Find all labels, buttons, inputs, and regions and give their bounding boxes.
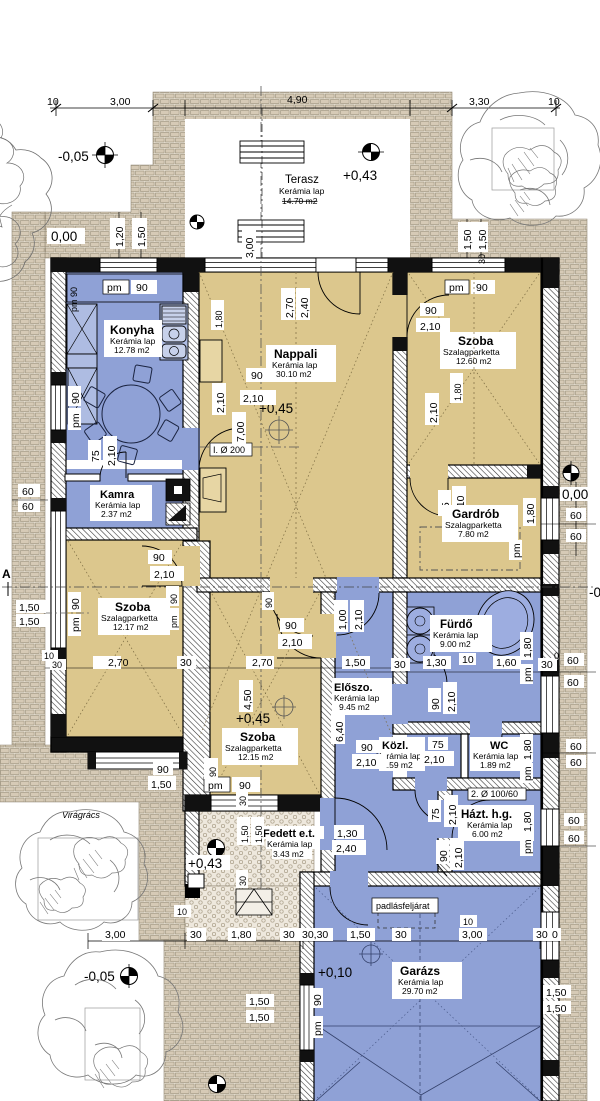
svg-text:pm: pm bbox=[107, 282, 122, 294]
svg-text:1.59 m2: 1.59 m2 bbox=[382, 760, 413, 770]
svg-text:3,00: 3,00 bbox=[105, 929, 126, 941]
svg-text:2,40: 2,40 bbox=[336, 843, 357, 855]
svg-text:12.17 m2: 12.17 m2 bbox=[113, 622, 149, 632]
svg-text:90: 90 bbox=[157, 764, 169, 776]
svg-text:75: 75 bbox=[90, 450, 102, 462]
svg-text:10: 10 bbox=[462, 654, 474, 666]
svg-text:1,50: 1,50 bbox=[350, 929, 371, 941]
svg-text:60: 60 bbox=[568, 815, 580, 827]
svg-text:1,60: 1,60 bbox=[496, 657, 517, 669]
svg-text:30: 30 bbox=[536, 929, 548, 941]
svg-text:10: 10 bbox=[463, 917, 473, 927]
svg-text:60: 60 bbox=[568, 833, 580, 845]
svg-text:30: 30 bbox=[477, 254, 487, 264]
svg-text:60: 60 bbox=[570, 741, 582, 753]
svg-text:Szoba: Szoba bbox=[458, 334, 494, 348]
svg-text:0: 0 bbox=[552, 929, 558, 941]
svg-text:90: 90 bbox=[208, 767, 218, 777]
svg-text:1,50: 1,50 bbox=[546, 987, 567, 999]
svg-text:1,80: 1,80 bbox=[214, 310, 224, 328]
svg-text:2,10: 2,10 bbox=[446, 691, 458, 712]
svg-text:4,90: 4,90 bbox=[287, 94, 308, 106]
svg-text:pm: pm bbox=[522, 839, 534, 854]
svg-text:30: 30 bbox=[394, 659, 406, 671]
svg-text:A: A bbox=[2, 567, 11, 581]
svg-text:29.70 m2: 29.70 m2 bbox=[402, 986, 438, 996]
svg-text:1,50: 1,50 bbox=[345, 657, 366, 669]
svg-text:+0,43: +0,43 bbox=[188, 856, 222, 871]
svg-text:I. Ø 200: I. Ø 200 bbox=[213, 445, 245, 455]
svg-text:2,10: 2,10 bbox=[154, 569, 175, 581]
svg-text:60: 60 bbox=[570, 531, 582, 543]
svg-text:3,30: 3,30 bbox=[469, 96, 490, 108]
svg-text:90: 90 bbox=[361, 742, 373, 754]
svg-text:1,80: 1,80 bbox=[522, 811, 534, 832]
svg-text:3,00: 3,00 bbox=[462, 929, 483, 941]
svg-text:1,50: 1,50 bbox=[19, 616, 40, 628]
svg-text:2,10: 2,10 bbox=[215, 392, 227, 413]
svg-text:1,80: 1,80 bbox=[522, 739, 534, 760]
svg-text:60: 60 bbox=[567, 677, 579, 689]
svg-text:10: 10 bbox=[177, 907, 187, 917]
svg-text:30: 30 bbox=[180, 657, 192, 669]
svg-text:10: 10 bbox=[47, 96, 59, 108]
svg-text:60: 60 bbox=[22, 486, 34, 498]
svg-text:pm: pm bbox=[312, 1021, 324, 1036]
svg-text:1,50: 1,50 bbox=[19, 602, 40, 614]
svg-text:pm: pm bbox=[522, 766, 534, 781]
svg-text:1,00: 1,00 bbox=[337, 609, 349, 630]
svg-text:30,30: 30,30 bbox=[302, 929, 328, 941]
svg-text:2,10: 2,10 bbox=[243, 393, 264, 405]
svg-text:90: 90 bbox=[438, 850, 450, 862]
svg-text:1,50: 1,50 bbox=[462, 229, 474, 250]
svg-text:Nappali: Nappali bbox=[274, 347, 317, 361]
svg-text:30: 30 bbox=[238, 876, 248, 886]
svg-text:1,50: 1,50 bbox=[254, 825, 264, 843]
svg-text:1,30: 1,30 bbox=[426, 657, 447, 669]
svg-text:2,10: 2,10 bbox=[420, 321, 441, 333]
svg-text:90: 90 bbox=[70, 392, 82, 404]
svg-text:30.10 m2: 30.10 m2 bbox=[276, 369, 312, 379]
svg-text:6.00 m2: 6.00 m2 bbox=[472, 829, 503, 839]
svg-text:30: 30 bbox=[238, 796, 248, 806]
svg-text:1,80: 1,80 bbox=[453, 383, 463, 401]
svg-text:2,10: 2,10 bbox=[356, 757, 377, 769]
svg-text:90: 90 bbox=[169, 594, 179, 604]
svg-text:2,10: 2,10 bbox=[353, 609, 365, 630]
svg-text:14.70 m2: 14.70 m2 bbox=[282, 196, 318, 206]
svg-text:75: 75 bbox=[430, 808, 442, 820]
svg-text:2.37 m2: 2.37 m2 bbox=[101, 509, 132, 519]
svg-text:Terasz: Terasz bbox=[285, 174, 319, 186]
svg-text:3,00: 3,00 bbox=[244, 237, 256, 258]
svg-text:12.15 m2: 12.15 m2 bbox=[238, 752, 274, 762]
svg-text:60: 60 bbox=[570, 757, 582, 769]
svg-text:Kerámia lap: Kerámia lap bbox=[267, 839, 313, 849]
svg-text:1,30: 1,30 bbox=[337, 828, 358, 840]
svg-text:2,10: 2,10 bbox=[282, 637, 303, 649]
svg-text:pm 90: pm 90 bbox=[69, 287, 79, 312]
svg-text:padlásfeljárat: padlásfeljárat bbox=[376, 901, 430, 911]
svg-text:-0,05: -0,05 bbox=[58, 149, 89, 164]
svg-text:1,50: 1,50 bbox=[249, 1012, 270, 1024]
svg-text:1,50: 1,50 bbox=[240, 825, 250, 843]
svg-text:90: 90 bbox=[312, 994, 324, 1006]
svg-text:1,20: 1,20 bbox=[114, 226, 126, 247]
svg-text:pm: pm bbox=[70, 413, 82, 428]
svg-text:1,50: 1,50 bbox=[151, 779, 172, 791]
svg-text:+0,45: +0,45 bbox=[236, 711, 270, 726]
svg-text:9.00 m2: 9.00 m2 bbox=[440, 639, 471, 649]
svg-text:12.78 m2: 12.78 m2 bbox=[114, 345, 150, 355]
svg-text:1,50: 1,50 bbox=[546, 1003, 567, 1015]
svg-text:pm: pm bbox=[449, 282, 464, 294]
svg-text:-0,05: -0,05 bbox=[84, 969, 115, 984]
svg-text:2,10: 2,10 bbox=[428, 402, 440, 423]
svg-text:7,00: 7,00 bbox=[235, 421, 247, 442]
svg-text:2,10: 2,10 bbox=[447, 804, 459, 825]
svg-text:2,70: 2,70 bbox=[284, 297, 296, 318]
svg-text:3.43 m2: 3.43 m2 bbox=[273, 849, 304, 859]
svg-text:90: 90 bbox=[251, 370, 263, 382]
svg-text:1,50: 1,50 bbox=[136, 226, 148, 247]
svg-text:30: 30 bbox=[52, 660, 62, 670]
svg-text:1,80: 1,80 bbox=[231, 929, 252, 941]
svg-text:90: 90 bbox=[425, 305, 437, 317]
svg-text:2,10: 2,10 bbox=[453, 847, 465, 868]
svg-text:3,00: 3,00 bbox=[110, 96, 131, 108]
svg-text:90: 90 bbox=[476, 282, 488, 294]
svg-text:90: 90 bbox=[285, 620, 297, 632]
svg-text:90: 90 bbox=[153, 552, 165, 564]
svg-text:6,40: 6,40 bbox=[334, 721, 346, 742]
svg-text:90: 90 bbox=[264, 598, 274, 608]
svg-text:Kerámia lap: Kerámia lap bbox=[279, 186, 325, 196]
svg-text:90: 90 bbox=[70, 598, 82, 610]
svg-text:-0,: -0, bbox=[589, 585, 600, 600]
svg-text:90: 90 bbox=[136, 282, 148, 294]
svg-text:75: 75 bbox=[432, 739, 444, 751]
svg-text:2,40: 2,40 bbox=[299, 297, 311, 318]
svg-text:pm: pm bbox=[70, 617, 82, 632]
svg-text:60: 60 bbox=[567, 655, 579, 667]
svg-text:pm: pm bbox=[169, 615, 179, 628]
svg-text:2. Ø 100/60: 2. Ø 100/60 bbox=[471, 789, 518, 799]
svg-text:1,80: 1,80 bbox=[525, 503, 537, 524]
svg-text:9.45 m2: 9.45 m2 bbox=[339, 702, 370, 712]
svg-text:Gardrób: Gardrób bbox=[452, 507, 499, 521]
svg-text:0,00: 0,00 bbox=[562, 487, 588, 502]
svg-text:1,80: 1,80 bbox=[522, 637, 534, 658]
svg-text:pm: pm bbox=[511, 543, 523, 558]
svg-text:0: 0 bbox=[554, 651, 559, 661]
svg-text:30: 30 bbox=[283, 929, 295, 941]
svg-text:Szoba: Szoba bbox=[115, 600, 151, 614]
svg-text:pm: pm bbox=[208, 780, 223, 792]
svg-text:2,10: 2,10 bbox=[106, 445, 118, 466]
svg-text:+0,10: +0,10 bbox=[318, 965, 352, 980]
svg-text:1.89 m2: 1.89 m2 bbox=[480, 760, 511, 770]
svg-text:7.80 m2: 7.80 m2 bbox=[458, 529, 489, 539]
svg-text:2,10: 2,10 bbox=[424, 754, 445, 766]
svg-text:60: 60 bbox=[570, 510, 582, 522]
svg-text:30: 30 bbox=[395, 929, 407, 941]
svg-text:Garázs: Garázs bbox=[400, 964, 440, 978]
svg-text:4,50: 4,50 bbox=[242, 689, 254, 710]
svg-text:90: 90 bbox=[430, 698, 442, 710]
svg-text:2,70: 2,70 bbox=[252, 657, 273, 669]
svg-text:30: 30 bbox=[190, 929, 202, 941]
svg-text:1,50: 1,50 bbox=[249, 996, 270, 1008]
svg-text:0,00: 0,00 bbox=[51, 229, 77, 244]
svg-text:Konyha: Konyha bbox=[110, 323, 154, 337]
svg-text:1,50: 1,50 bbox=[477, 229, 489, 250]
svg-text:Szoba: Szoba bbox=[240, 730, 276, 744]
svg-text:pm: pm bbox=[522, 667, 534, 682]
svg-text:30: 30 bbox=[541, 659, 553, 671]
svg-text:2,70: 2,70 bbox=[108, 657, 129, 669]
svg-text:+0,43: +0,43 bbox=[343, 168, 377, 183]
svg-text:60: 60 bbox=[22, 501, 34, 513]
